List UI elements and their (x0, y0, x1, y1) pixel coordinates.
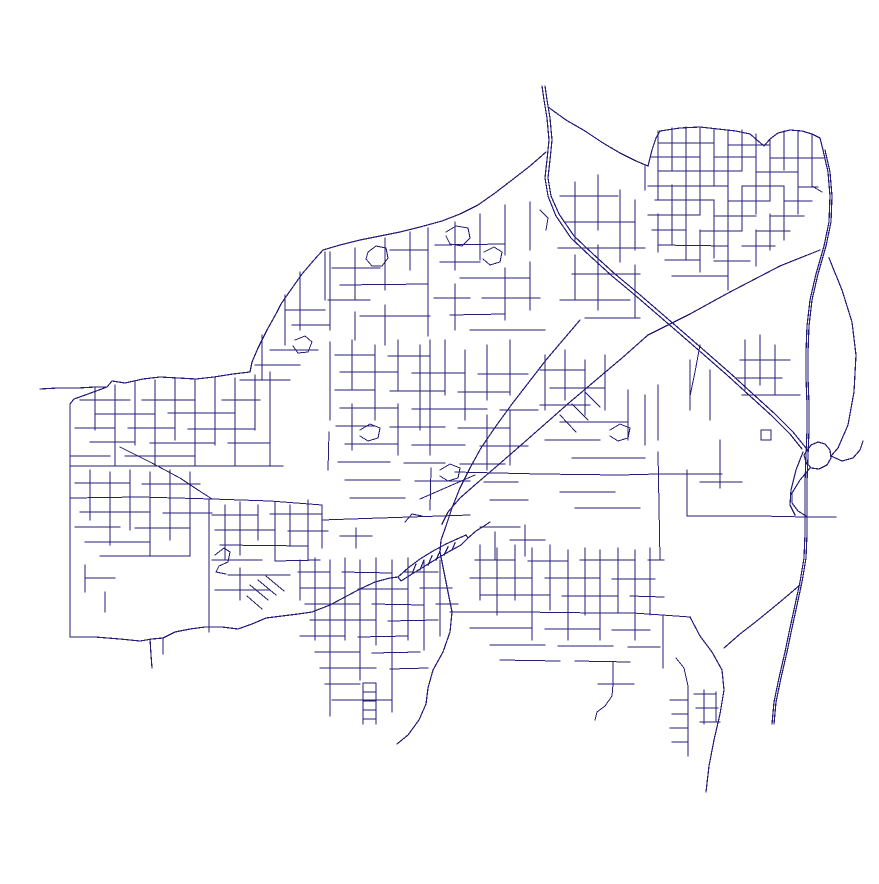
road-segment (428, 556, 432, 565)
road-segment (163, 577, 398, 638)
road-segment (774, 150, 832, 724)
road-segment (328, 432, 329, 470)
road-segment (455, 472, 722, 475)
road-segment (430, 468, 431, 510)
road-segment (70, 637, 163, 641)
road-segment (648, 250, 820, 335)
road-segment (40, 372, 250, 389)
road-segment (610, 424, 630, 441)
road-segment (397, 320, 580, 744)
road-segment (545, 86, 806, 448)
road-segment (220, 545, 308, 546)
road-segment (342, 572, 392, 573)
road-segment (572, 404, 588, 420)
road-segment (150, 639, 152, 668)
road-segment (446, 226, 470, 246)
road-segment (275, 560, 320, 561)
road-segment (401, 538, 468, 581)
road-segment (405, 514, 422, 522)
road-segment (687, 516, 836, 517)
map-canvas (0, 0, 879, 884)
road-segment (390, 668, 428, 669)
road-segment (483, 247, 502, 265)
road-segment (70, 497, 322, 505)
road-segment (690, 345, 700, 396)
street-network-svg (0, 0, 879, 884)
road-segment (215, 548, 230, 574)
road-segment (761, 430, 771, 440)
road-segment (388, 620, 438, 621)
road-segment (70, 387, 107, 404)
road-segment (772, 150, 830, 724)
road-segment (690, 617, 724, 792)
road-segment (595, 684, 613, 720)
road-segment (658, 452, 660, 560)
road-segment (468, 522, 490, 538)
road-segment (829, 258, 856, 456)
road-segment (372, 652, 420, 653)
road-segment (575, 661, 630, 662)
major-roads-layer (40, 86, 863, 792)
road-segment (372, 604, 424, 605)
local-streets-layer (70, 127, 836, 756)
road-segment (790, 452, 803, 515)
road-segment (548, 107, 648, 166)
road-segment (358, 636, 408, 637)
road-segment (450, 314, 505, 315)
road-segment (120, 447, 212, 499)
road-segment (360, 424, 380, 441)
road-segment (398, 577, 401, 581)
road-segment (633, 613, 690, 617)
road-segment (658, 245, 728, 246)
road-segment (247, 596, 262, 609)
road-segment (250, 250, 323, 372)
road-segment (676, 658, 688, 686)
road-segment (323, 152, 546, 250)
road-segment (540, 210, 548, 230)
road-segment (420, 475, 475, 499)
road-segment (340, 284, 428, 285)
road-segment (450, 612, 633, 613)
road-segment (500, 660, 560, 661)
road-segment (724, 585, 800, 648)
road-segment (560, 415, 576, 432)
road-segment (250, 585, 268, 600)
road-segment (435, 244, 505, 245)
